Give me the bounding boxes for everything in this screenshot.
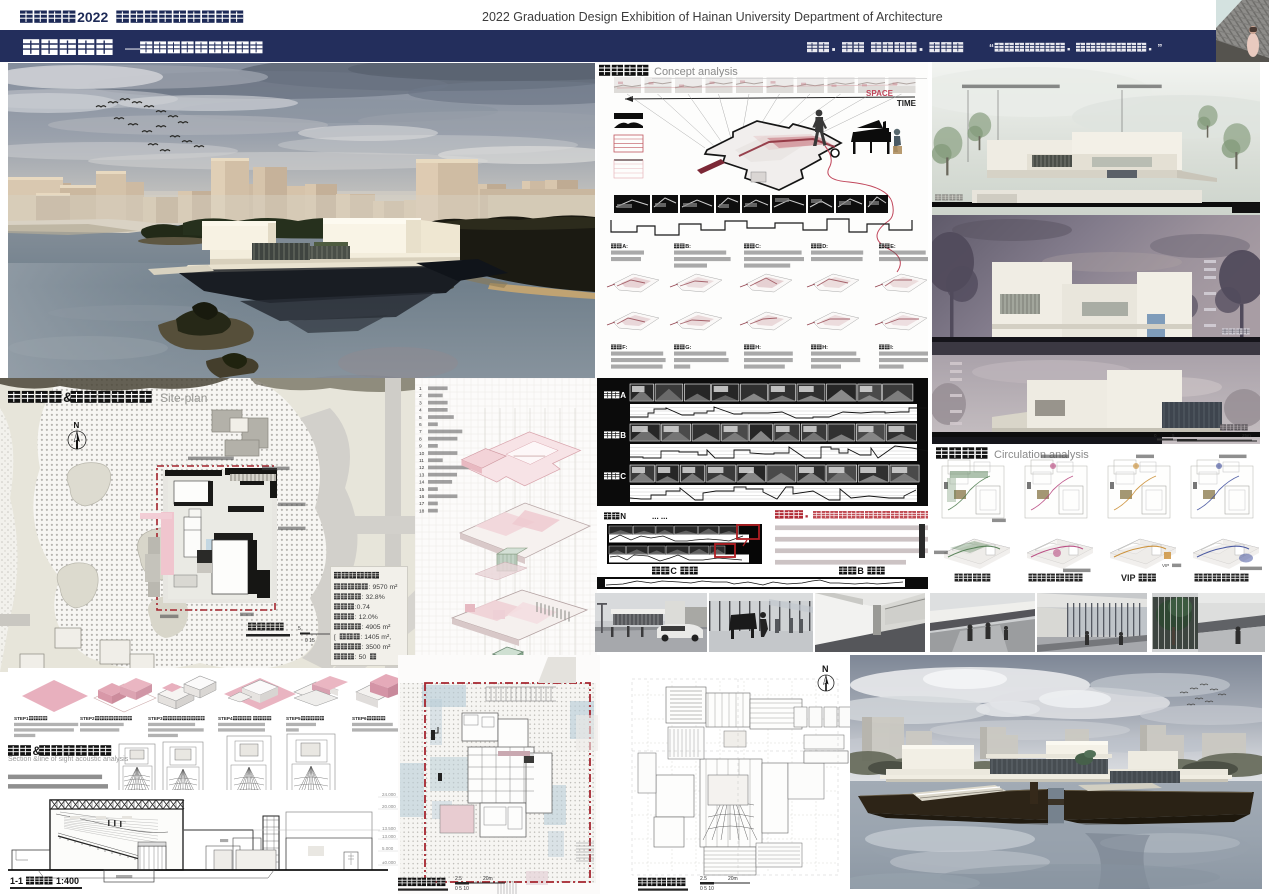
svg-text:D:: D: bbox=[822, 244, 828, 250]
svg-text:: 12.0%: : 12.0% bbox=[355, 614, 378, 621]
svg-text:VIP: VIP bbox=[1121, 573, 1136, 583]
svg-text:12: 12 bbox=[419, 465, 425, 471]
svg-text:F:: F: bbox=[622, 345, 627, 351]
svg-text:3: 3 bbox=[419, 400, 422, 406]
svg-text:5: 5 bbox=[1172, 433, 1175, 438]
svg-text:14: 14 bbox=[419, 480, 425, 486]
svg-text:C: C bbox=[620, 472, 626, 481]
svg-text:: 3500 m²: : 3500 m² bbox=[362, 644, 391, 651]
svg-text:1-1: 1-1 bbox=[10, 876, 23, 886]
svg-text:G:: G: bbox=[685, 345, 691, 351]
svg-text:20m: 20m bbox=[483, 876, 493, 882]
svg-text:±0.000: ±0.000 bbox=[382, 860, 396, 865]
svg-text:20.000: 20.000 bbox=[382, 804, 396, 809]
svg-text:STEP3: STEP3 bbox=[148, 716, 163, 721]
svg-text:[: [ bbox=[334, 634, 336, 641]
svg-text:0 5 10: 0 5 10 bbox=[700, 886, 714, 890]
svg-text:STEP4: STEP4 bbox=[218, 716, 233, 721]
svg-text:0: 0 bbox=[1154, 433, 1157, 438]
svg-text:4: 4 bbox=[419, 408, 422, 414]
svg-text:Concept analysis: Concept analysis bbox=[654, 66, 738, 78]
svg-text:13: 13 bbox=[419, 472, 425, 478]
svg-text:E:: E: bbox=[890, 244, 896, 250]
svg-text:B: B bbox=[857, 566, 864, 576]
svg-text:7: 7 bbox=[419, 429, 422, 435]
svg-text:5.000: 5.000 bbox=[382, 846, 394, 851]
svg-text:”: ” bbox=[1157, 43, 1162, 54]
svg-text:: 50: : 50 bbox=[355, 654, 367, 661]
svg-text:I:: I: bbox=[890, 345, 894, 351]
svg-text:1: 1 bbox=[419, 386, 422, 392]
svg-text:25m: 25m bbox=[1242, 433, 1251, 438]
svg-text:C: C bbox=[670, 566, 677, 576]
svg-text:TIME: TIME bbox=[897, 99, 917, 108]
svg-text:A:: A: bbox=[622, 244, 628, 250]
svg-text:13.500: 13.500 bbox=[382, 826, 396, 831]
svg-text:H:: H: bbox=[755, 345, 761, 351]
svg-text:15: 15 bbox=[419, 487, 425, 493]
svg-text:B: B bbox=[620, 431, 626, 440]
svg-text:STEP5: STEP5 bbox=[286, 716, 301, 721]
svg-text:16: 16 bbox=[419, 494, 425, 500]
svg-text:5: 5 bbox=[298, 626, 301, 632]
svg-text:2022: 2022 bbox=[77, 9, 108, 25]
svg-text:20m: 20m bbox=[728, 876, 738, 882]
svg-text:2: 2 bbox=[419, 393, 422, 399]
svg-text:N: N bbox=[822, 664, 829, 674]
svg-text:A: A bbox=[620, 391, 626, 400]
svg-text::0.74: :0.74 bbox=[355, 604, 370, 611]
svg-text:... ...: ... ... bbox=[652, 512, 668, 521]
svg-text:SPACE: SPACE bbox=[866, 89, 894, 98]
svg-text:H:: H: bbox=[822, 345, 828, 351]
svg-text:17: 17 bbox=[419, 501, 425, 507]
svg-text:13.000: 13.000 bbox=[382, 834, 396, 839]
svg-text:1:400: 1:400 bbox=[56, 876, 79, 886]
svg-text:N: N bbox=[74, 421, 80, 430]
svg-text:2.5: 2.5 bbox=[700, 876, 707, 882]
svg-text:10: 10 bbox=[419, 451, 425, 457]
svg-text:: 1405 m²,: : 1405 m², bbox=[361, 634, 392, 641]
svg-text:2.5: 2.5 bbox=[455, 876, 462, 882]
svg-text:5: 5 bbox=[419, 415, 422, 421]
svg-text:C:: C: bbox=[755, 244, 761, 250]
svg-text:Site-plan: Site-plan bbox=[160, 391, 207, 405]
svg-text:18: 18 bbox=[419, 508, 425, 514]
svg-text:N: N bbox=[620, 512, 626, 521]
svg-text:STEP2: STEP2 bbox=[80, 716, 95, 721]
svg-text:: 32.8%: : 32.8% bbox=[362, 594, 385, 601]
svg-text:0 5 10: 0 5 10 bbox=[455, 886, 469, 890]
svg-text:11: 11 bbox=[419, 458, 424, 464]
svg-text:VIP: VIP bbox=[1162, 563, 1169, 568]
svg-text:: 4905 m²: : 4905 m² bbox=[362, 624, 391, 631]
svg-text:STEP6: STEP6 bbox=[352, 716, 367, 721]
svg-text:STEP1: STEP1 bbox=[14, 716, 29, 721]
svg-text:24.000: 24.000 bbox=[382, 792, 396, 797]
svg-text:6: 6 bbox=[419, 422, 422, 428]
svg-text:8: 8 bbox=[419, 436, 422, 442]
svg-text:9: 9 bbox=[419, 444, 422, 450]
svg-text:: 9570 m²: : 9570 m² bbox=[369, 584, 398, 591]
svg-text:B:: B: bbox=[685, 244, 691, 250]
svg-text:0 15: 0 15 bbox=[305, 638, 315, 644]
svg-text:“: “ bbox=[989, 43, 994, 54]
